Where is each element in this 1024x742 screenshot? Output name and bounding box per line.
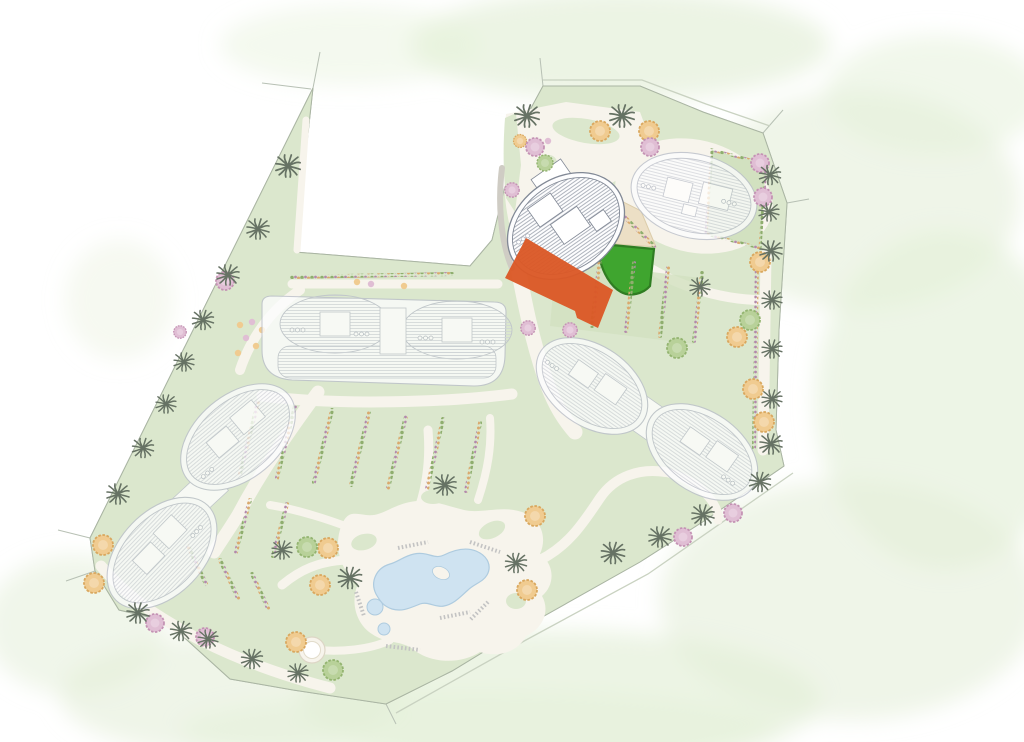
- tan-tree-icon: [93, 535, 113, 555]
- tan-tree-icon: [525, 506, 545, 526]
- pink-tree-icon: [724, 504, 742, 522]
- pink-tree-icon: [751, 154, 769, 172]
- shrub-icon: [235, 350, 241, 356]
- tan-tree-icon: [517, 580, 537, 600]
- master-plan-viewport: [0, 0, 1024, 742]
- shrub-icon: [354, 279, 360, 285]
- shrub-icon: [253, 343, 259, 349]
- shrub-icon: [545, 138, 551, 144]
- shrub-icon: [243, 335, 249, 341]
- shrub-icon: [249, 319, 255, 325]
- site-master-plan: [0, 0, 1024, 742]
- pink-tree-icon: [754, 188, 772, 206]
- tan-tree-icon: [318, 538, 338, 558]
- green-tree-icon: [740, 310, 760, 330]
- green-tree-icon: [297, 537, 317, 557]
- tan-tree-icon: [743, 379, 763, 399]
- pink-tree-icon: [563, 323, 577, 337]
- pink-tree-icon: [521, 321, 535, 335]
- shrub-icon: [368, 281, 374, 287]
- green-tree-icon: [667, 338, 687, 358]
- pink-tree-icon: [674, 528, 692, 546]
- tan-tree-icon: [590, 121, 610, 141]
- tan-tree-icon: [754, 412, 774, 432]
- green-tree-icon: [537, 155, 553, 171]
- green-tree-icon: [323, 660, 343, 680]
- tan-tree-icon: [727, 327, 747, 347]
- pink-tree-icon: [526, 138, 544, 156]
- pink-tree-icon: [174, 326, 187, 339]
- building-center-long[interactable]: [262, 295, 512, 386]
- tan-tree-icon: [514, 135, 527, 148]
- tan-tree-icon: [310, 575, 330, 595]
- pink-tree-icon: [505, 183, 519, 197]
- shrub-icon: [401, 283, 407, 289]
- round-pool: [367, 599, 383, 615]
- pink-tree-icon: [641, 138, 659, 156]
- tan-tree-icon: [286, 632, 306, 652]
- tan-tree-icon: [84, 573, 104, 593]
- shrub-icon: [237, 322, 243, 328]
- round-pool-small: [378, 623, 390, 635]
